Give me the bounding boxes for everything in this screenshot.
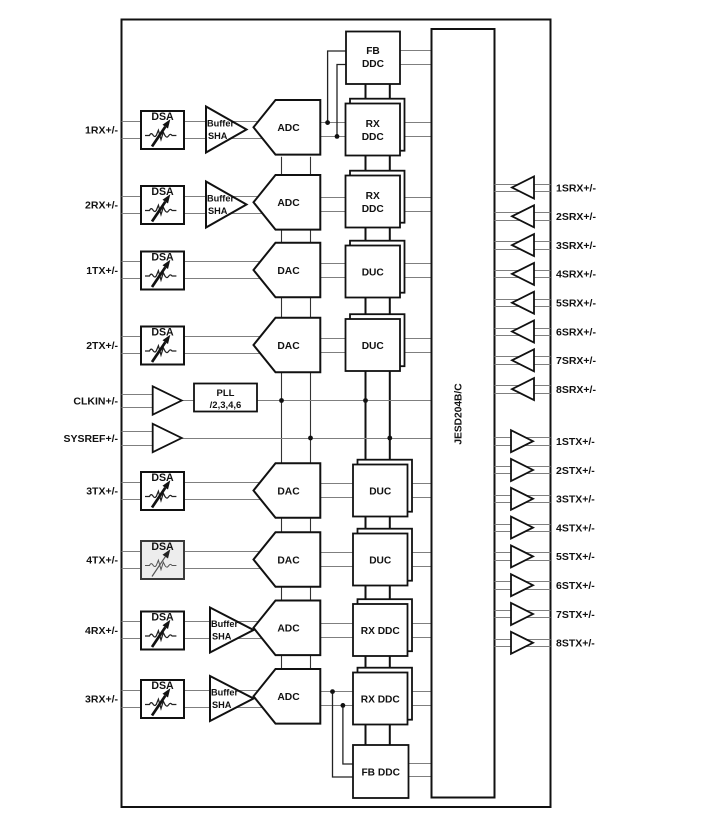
svg-text:4RX+/-: 4RX+/-: [85, 625, 118, 637]
svg-text:3SRX+/-: 3SRX+/-: [556, 240, 596, 252]
svg-text:SHA: SHA: [212, 700, 232, 710]
svg-text:ADC: ADC: [277, 123, 300, 134]
svg-text:DAC: DAC: [277, 555, 300, 566]
svg-text:SYSREF+/-: SYSREF+/-: [63, 433, 118, 445]
svg-text:ADC: ADC: [277, 198, 300, 209]
svg-text:4SRX+/-: 4SRX+/-: [556, 269, 596, 281]
svg-text:2STX+/-: 2STX+/-: [556, 465, 595, 477]
svg-text:6SRX+/-: 6SRX+/-: [556, 326, 596, 338]
svg-text:SHA: SHA: [208, 206, 228, 216]
svg-text:8STX+/-: 8STX+/-: [556, 638, 595, 650]
svg-text:2RX+/-: 2RX+/-: [85, 199, 118, 211]
svg-text:DSA: DSA: [151, 612, 174, 624]
svg-text:DAC: DAC: [277, 266, 300, 277]
svg-text:DSA: DSA: [151, 541, 174, 553]
svg-text:JESD204B/C: JESD204B/C: [453, 383, 464, 445]
svg-text:6STX+/-: 6STX+/-: [556, 580, 595, 592]
svg-text:SHA: SHA: [212, 631, 232, 641]
svg-text:/2,3,4,6: /2,3,4,6: [210, 400, 242, 411]
svg-text:5STX+/-: 5STX+/-: [556, 551, 595, 563]
svg-text:DUC: DUC: [369, 556, 392, 567]
svg-text:DAC: DAC: [277, 341, 300, 352]
svg-text:5SRX+/-: 5SRX+/-: [556, 298, 596, 310]
svg-text:4STX+/-: 4STX+/-: [556, 522, 595, 534]
svg-text:7STX+/-: 7STX+/-: [556, 609, 595, 621]
svg-text:Buffer: Buffer: [207, 119, 234, 129]
svg-text:RX DDC: RX DDC: [361, 695, 401, 706]
svg-text:DSA: DSA: [151, 186, 174, 198]
svg-text:SHA: SHA: [208, 131, 228, 141]
svg-text:DSA: DSA: [151, 680, 174, 692]
svg-text:8SRX+/-: 8SRX+/-: [556, 384, 596, 396]
svg-text:RX DDC: RX DDC: [361, 626, 401, 637]
svg-text:DDC: DDC: [362, 132, 385, 143]
svg-text:2TX+/-: 2TX+/-: [86, 340, 118, 352]
svg-text:DUC: DUC: [369, 487, 392, 498]
svg-text:ADC: ADC: [277, 624, 300, 635]
svg-text:DAC: DAC: [277, 486, 300, 497]
svg-text:1SRX+/-: 1SRX+/-: [556, 182, 596, 194]
svg-text:7SRX+/-: 7SRX+/-: [556, 355, 596, 367]
svg-text:1RX+/-: 1RX+/-: [85, 124, 118, 136]
svg-text:1TX+/-: 1TX+/-: [86, 265, 118, 277]
svg-text:RX: RX: [366, 191, 380, 202]
svg-text:Buffer: Buffer: [211, 619, 238, 629]
svg-text:DSA: DSA: [151, 472, 174, 484]
svg-text:ADC: ADC: [277, 692, 300, 703]
svg-text:3STX+/-: 3STX+/-: [556, 494, 595, 506]
svg-text:3TX+/-: 3TX+/-: [86, 485, 118, 497]
svg-text:DUC: DUC: [362, 268, 385, 279]
svg-text:3RX+/-: 3RX+/-: [85, 693, 118, 705]
svg-text:2SRX+/-: 2SRX+/-: [556, 211, 596, 223]
svg-text:RX: RX: [366, 119, 380, 130]
svg-text:DSA: DSA: [151, 111, 174, 123]
svg-text:CLKIN+/-: CLKIN+/-: [73, 395, 118, 407]
svg-text:4TX+/-: 4TX+/-: [86, 554, 118, 566]
svg-text:DSA: DSA: [151, 327, 174, 339]
svg-text:DUC: DUC: [362, 341, 385, 352]
svg-text:FB: FB: [366, 46, 380, 57]
svg-text:DDC: DDC: [362, 59, 385, 70]
svg-text:FB DDC: FB DDC: [361, 768, 400, 779]
svg-text:DDC: DDC: [362, 204, 385, 215]
svg-text:1STX+/-: 1STX+/-: [556, 436, 595, 448]
svg-text:Buffer: Buffer: [207, 194, 234, 204]
svg-text:Buffer: Buffer: [211, 688, 238, 698]
svg-text:PLL: PLL: [217, 388, 235, 399]
svg-text:DSA: DSA: [151, 252, 174, 264]
